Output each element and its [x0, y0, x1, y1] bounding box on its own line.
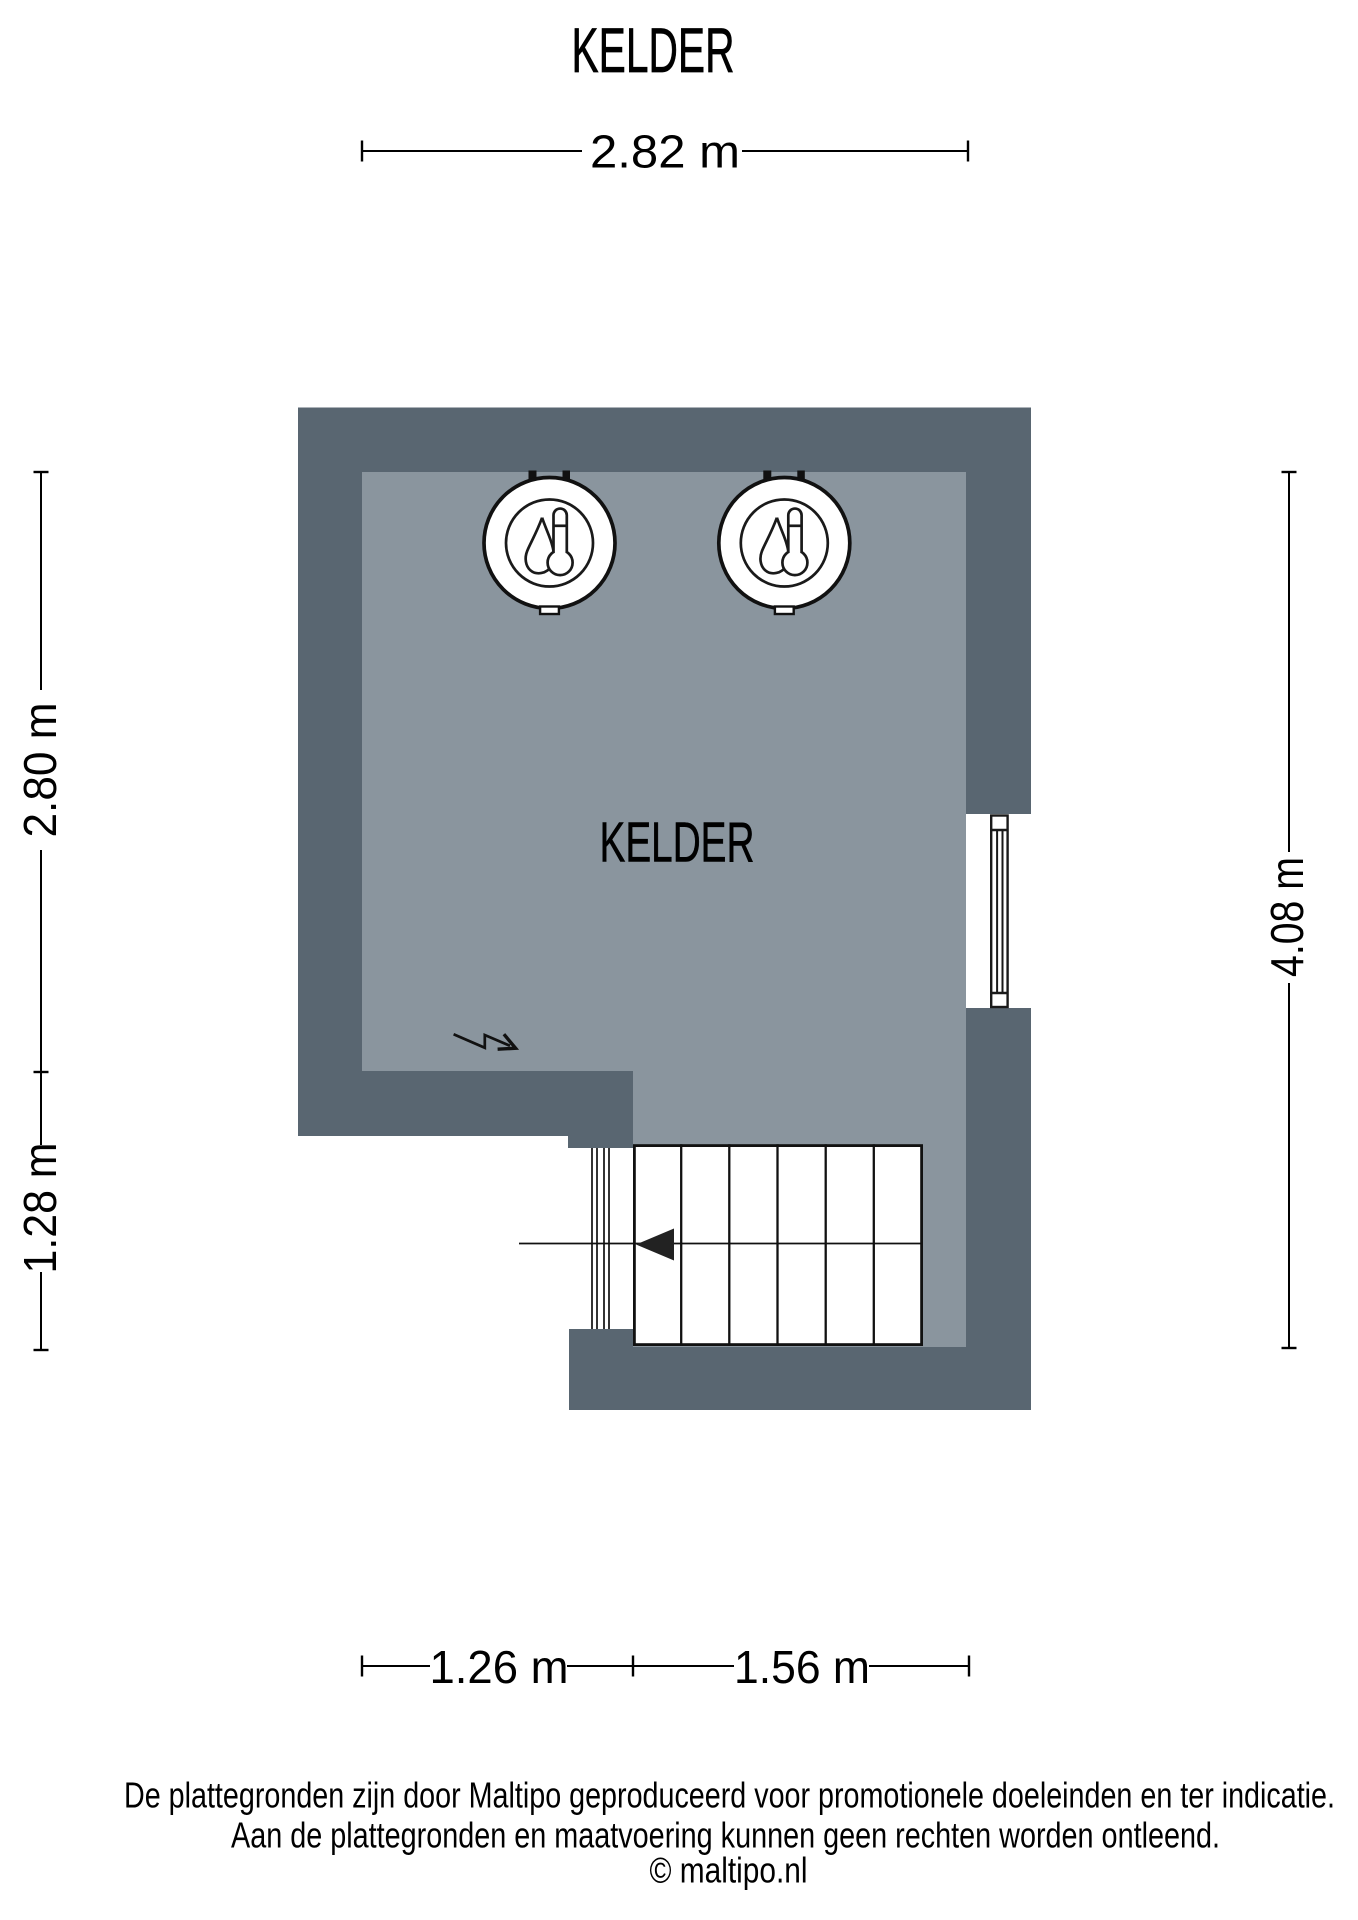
svg-text:2.82 m: 2.82 m	[590, 126, 740, 178]
svg-text:2.80 m: 2.80 m	[14, 703, 66, 838]
svg-text:1.28 m: 1.28 m	[14, 1143, 66, 1274]
svg-text:1.26 m: 1.26 m	[430, 1641, 569, 1693]
svg-text:4.08 m: 4.08 m	[1261, 857, 1313, 977]
svg-text:1.56 m: 1.56 m	[734, 1641, 870, 1693]
svg-text:KELDER: KELDER	[600, 811, 755, 875]
svg-text:De plattegronden zijn door Mal: De plattegronden zijn door Maltipo gepro…	[124, 1775, 1335, 1816]
svg-text:© maltipo.nl: © maltipo.nl	[650, 1850, 808, 1891]
svg-text:KELDER: KELDER	[572, 16, 735, 86]
